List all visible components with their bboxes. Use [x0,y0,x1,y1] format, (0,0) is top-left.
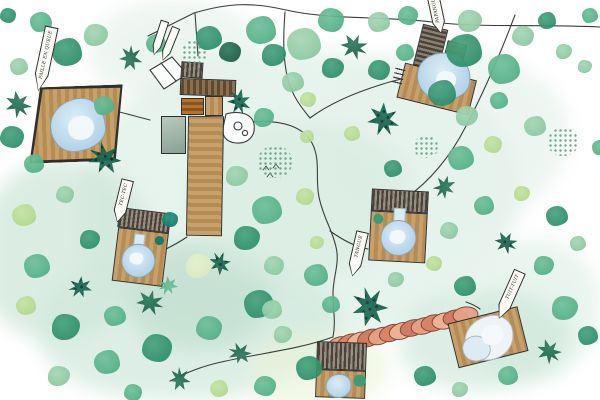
planter [353,374,365,386]
lodge-roof-brown [180,78,237,97]
lodge-roof-orange [181,98,204,115]
cabin-label: TANGUE [354,235,364,258]
lodge-annex [205,96,223,116]
pool [325,373,352,398]
resort-map: PAILLE EN QUEUE PAPANGUE TEC-TEC TANGUE … [0,0,600,400]
cabin-south[interactable] [309,341,373,400]
lodge-gray-wing [161,116,186,154]
roof [316,341,367,371]
lodge-long-deck [186,116,224,237]
lodge-roof-dark [180,61,203,78]
cabin-paille-en-queue[interactable] [27,84,126,163]
cabin-tangue[interactable] [366,188,432,265]
